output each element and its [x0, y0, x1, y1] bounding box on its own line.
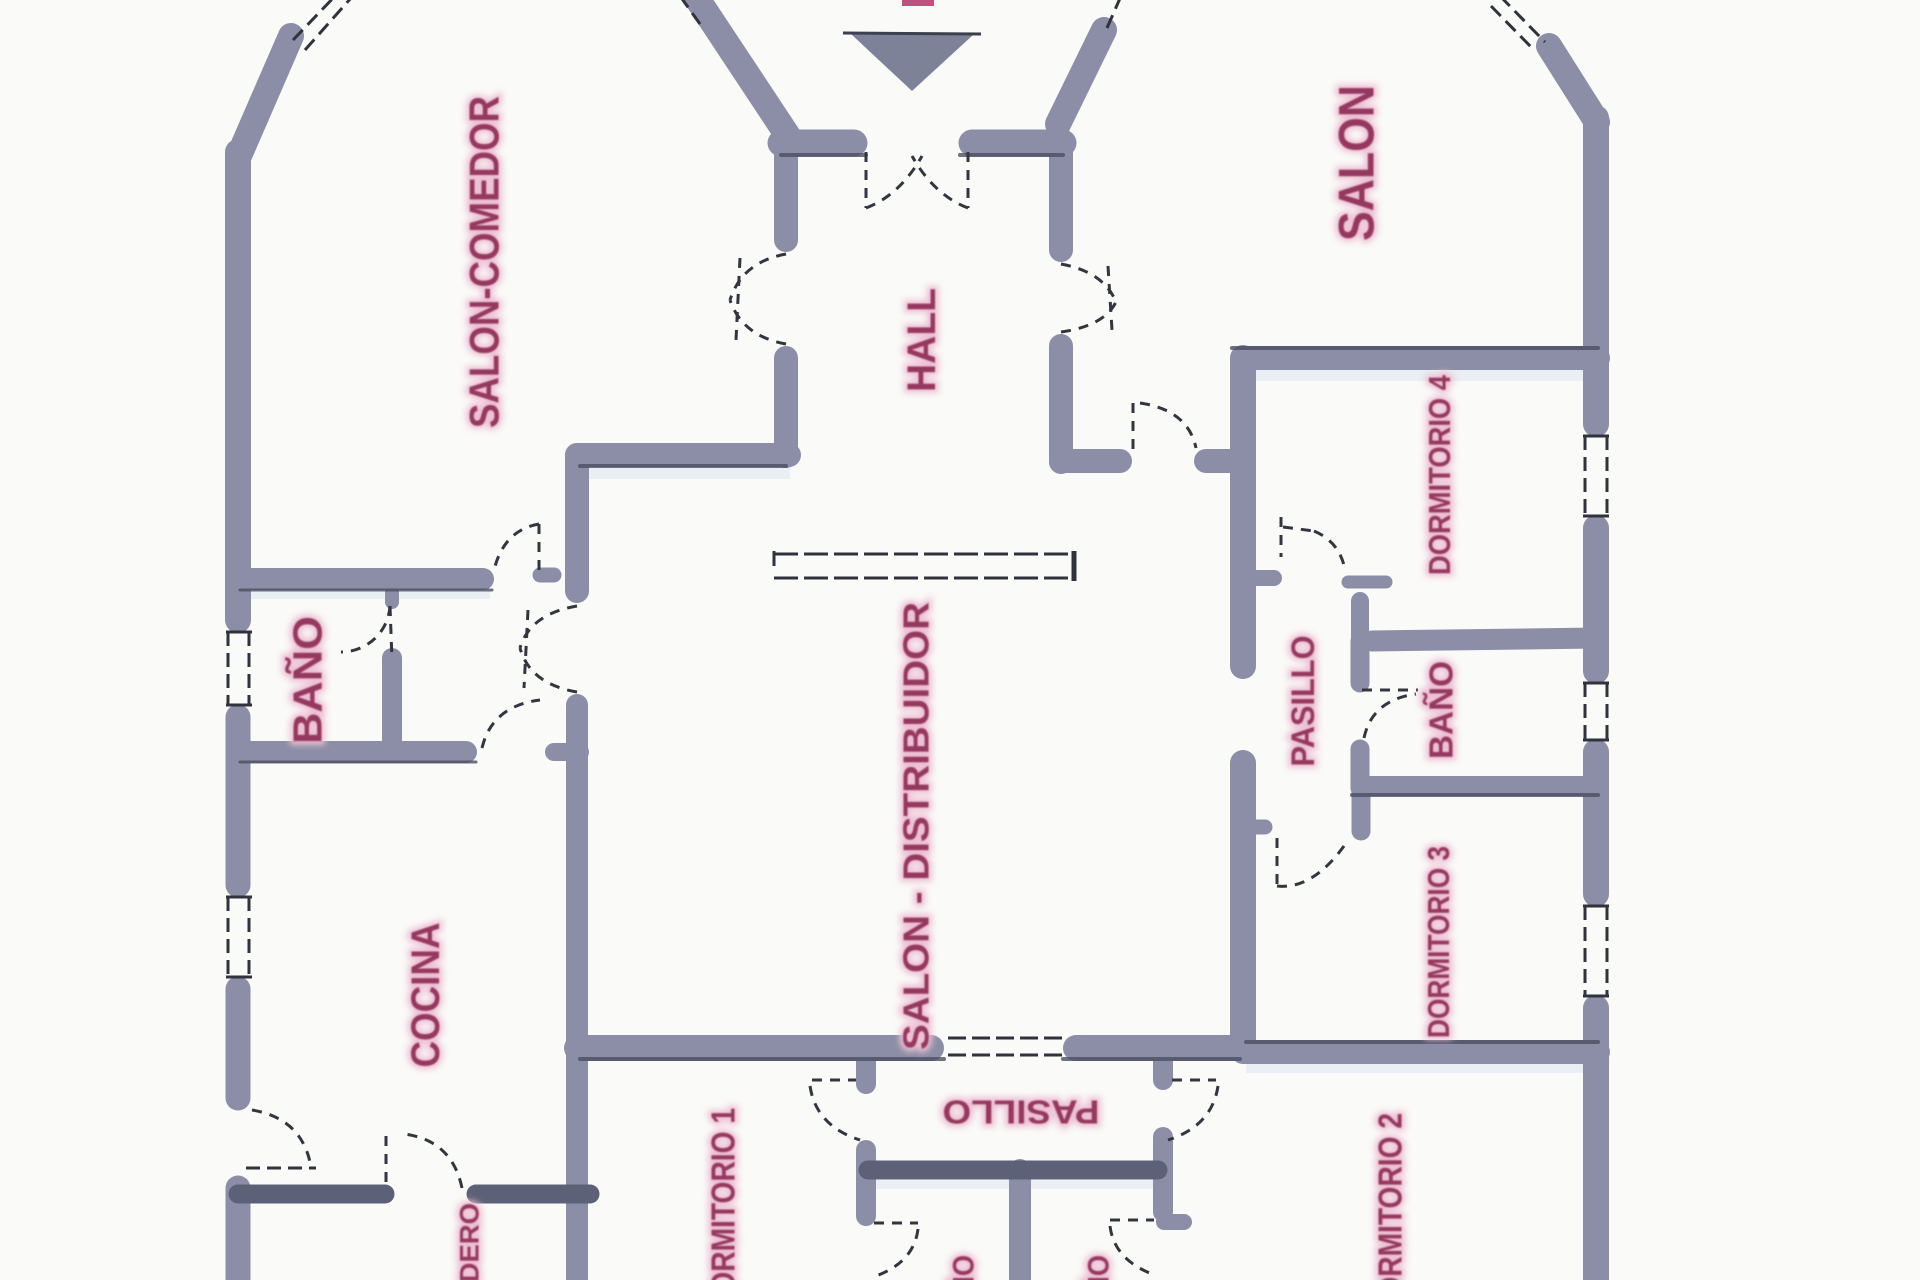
svg-text:DORMITORIO 2: DORMITORIO 2 — [1372, 1113, 1409, 1280]
svg-text:PASILLO: PASILLO — [1285, 636, 1321, 767]
svg-text:DORMITORIO 4: DORMITORIO 4 — [1422, 374, 1457, 575]
svg-text:COCINA: COCINA — [404, 923, 448, 1068]
svg-text:PASILLO: PASILLO — [943, 1093, 1100, 1130]
svg-text:SALON-COMEDOR: SALON-COMEDOR — [461, 96, 508, 428]
svg-text:DORMITORIO 3: DORMITORIO 3 — [1421, 846, 1456, 1038]
svg-text:BAÑO: BAÑO — [1082, 1255, 1116, 1280]
svg-text:SALON: SALON — [1329, 85, 1385, 241]
svg-text:BAÑO: BAÑO — [947, 1255, 981, 1280]
svg-text:BAÑO: BAÑO — [1423, 661, 1460, 759]
svg-text:BAÑO: BAÑO — [284, 616, 330, 744]
svg-text:SALON - DISTRIBUIDOR: SALON - DISTRIBUIDOR — [896, 602, 937, 1050]
svg-text:HALL: HALL — [900, 288, 944, 392]
svg-text:DORMITORIO 1: DORMITORIO 1 — [705, 1108, 742, 1280]
svg-text:LAVADERO: LAVADERO — [454, 1203, 484, 1280]
